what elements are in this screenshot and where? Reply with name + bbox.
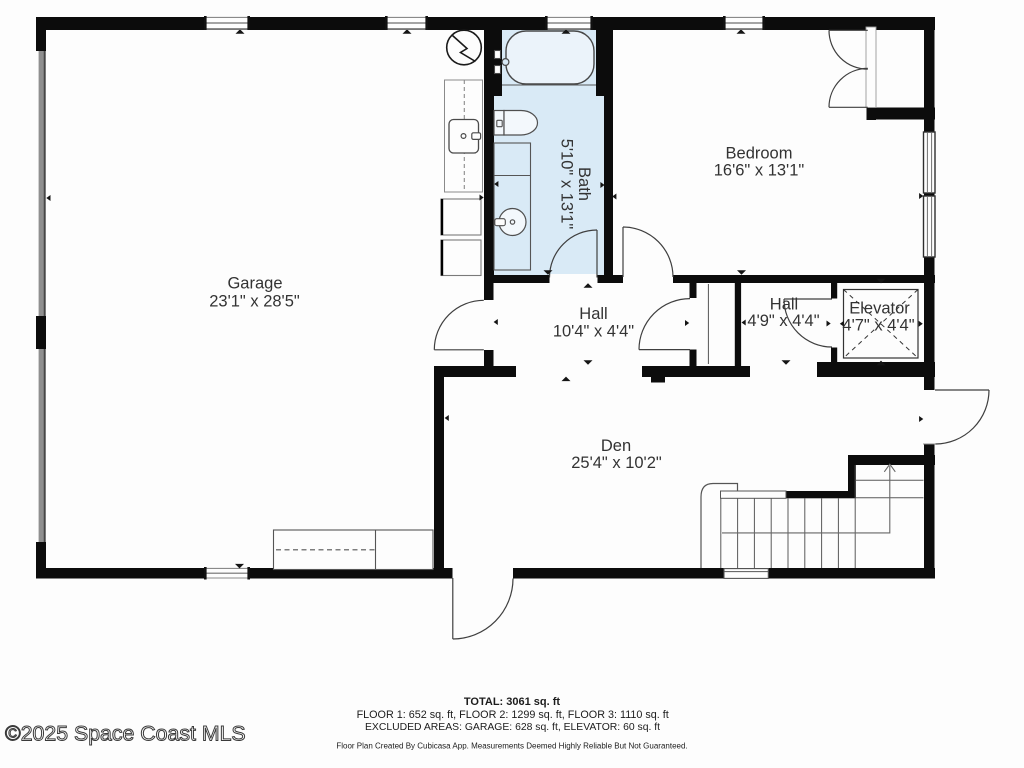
svg-text:23'1" x 28'5": 23'1" x 28'5" [209,293,300,311]
svg-text:Elevator: Elevator [849,299,910,317]
svg-text:Bath: Bath [575,167,593,201]
svg-text:TOTAL: 3061 sq. ft: TOTAL: 3061 sq. ft [464,696,561,708]
svg-text:16'6" x 13'1": 16'6" x 13'1" [714,161,805,179]
svg-text:Bedroom: Bedroom [726,145,793,163]
svg-text:FLOOR 1: 652 sq. ft, FLOOR 2:: FLOOR 1: 652 sq. ft, FLOOR 2: 1299 sq. f… [357,709,669,721]
svg-text:EXCLUDED AREAS: GARAGE: 628 sq: EXCLUDED AREAS: GARAGE: 628 sq. ft, ELEV… [365,722,660,733]
svg-text:4'9" x 4'4": 4'9" x 4'4" [747,312,819,330]
svg-text:4'7" x 4'4": 4'7" x 4'4" [842,317,914,335]
svg-text:25'4" x 10'2": 25'4" x 10'2" [571,454,662,472]
svg-text:Hall: Hall [770,295,798,313]
svg-text:Den: Den [601,437,631,455]
svg-text:Hall: Hall [579,305,607,323]
svg-text:©2025 Space Coast MLS: ©2025 Space Coast MLS [5,722,246,746]
svg-text:5'10" x 13'1": 5'10" x 13'1" [558,139,576,230]
svg-text:Floor Plan Created By Cubicasa: Floor Plan Created By Cubicasa App. Meas… [336,741,687,750]
svg-text:Garage: Garage [227,275,282,293]
svg-text:10'4" x 4'4": 10'4" x 4'4" [553,323,634,341]
